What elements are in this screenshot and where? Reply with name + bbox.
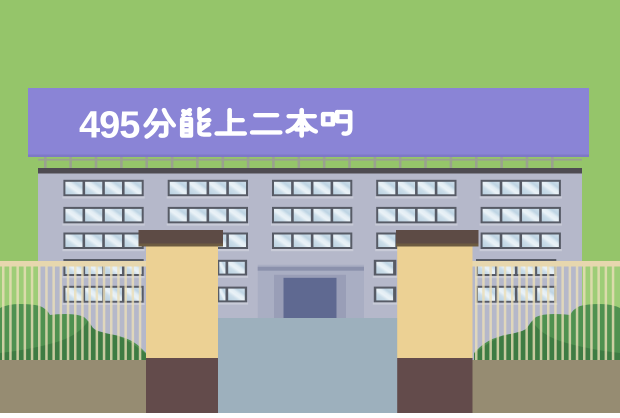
svg-text:495: 495	[79, 105, 140, 147]
